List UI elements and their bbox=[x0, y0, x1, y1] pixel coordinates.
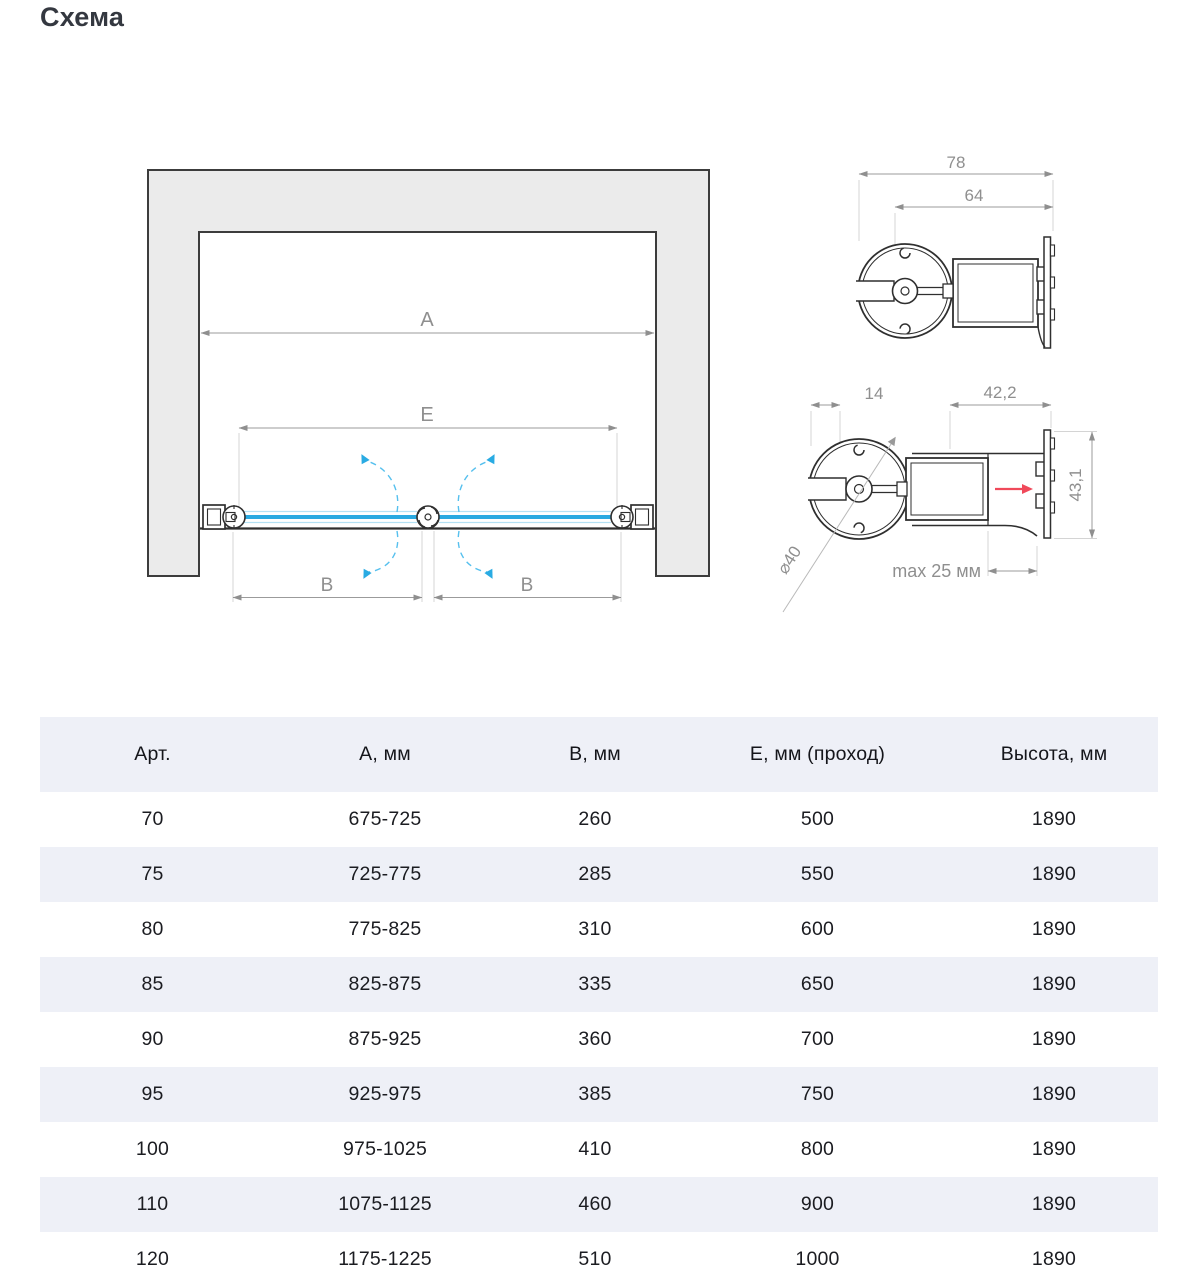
table-cell: 875-925 bbox=[265, 1012, 505, 1067]
table-cell: 1890 bbox=[950, 957, 1158, 1012]
table-cell: 95 bbox=[40, 1067, 265, 1122]
dim-78-label: 78 bbox=[947, 153, 966, 172]
column-header: В, мм bbox=[505, 717, 685, 792]
table-cell: 310 bbox=[505, 902, 685, 957]
detail-section-bottom: 14 42,2 bbox=[773, 383, 1097, 612]
table-cell: 1890 bbox=[950, 1067, 1158, 1122]
table-cell: 385 bbox=[505, 1067, 685, 1122]
table-cell: 650 bbox=[685, 957, 950, 1012]
table-row: 70675-7252605001890 bbox=[40, 792, 1158, 847]
table-row: 85825-8753356501890 bbox=[40, 957, 1158, 1012]
table-cell: 600 bbox=[685, 902, 950, 957]
dim-b-right-label: B bbox=[521, 575, 534, 596]
column-header: Арт. bbox=[40, 717, 265, 792]
dim-14-label: 14 bbox=[865, 384, 884, 403]
size-table: Арт.А, ммВ, ммЕ, мм (проход)Высота, мм 7… bbox=[40, 717, 1158, 1287]
table-cell: 825-875 bbox=[265, 957, 505, 1012]
table-cell: 260 bbox=[505, 792, 685, 847]
table-cell: 1890 bbox=[950, 902, 1158, 957]
table-cell: 925-975 bbox=[265, 1067, 505, 1122]
column-header: Высота, мм bbox=[950, 717, 1158, 792]
table-cell: 1890 bbox=[950, 1012, 1158, 1067]
table-cell: 460 bbox=[505, 1177, 685, 1232]
table-cell: 75 bbox=[40, 847, 265, 902]
table-cell: 285 bbox=[505, 847, 685, 902]
table-row: 1101075-11254609001890 bbox=[40, 1177, 1158, 1232]
table-row: 90875-9253607001890 bbox=[40, 1012, 1158, 1067]
hinge-right bbox=[611, 505, 633, 529]
table-cell: 1000 bbox=[685, 1232, 950, 1287]
table-row: 1201175-122551010001890 bbox=[40, 1232, 1158, 1287]
table-cell: 1175-1225 bbox=[265, 1232, 505, 1287]
table-cell: 410 bbox=[505, 1122, 685, 1177]
table-cell: 750 bbox=[685, 1067, 950, 1122]
table-cell: 1075-1125 bbox=[265, 1177, 505, 1232]
table-cell: 700 bbox=[685, 1012, 950, 1067]
table-cell: 120 bbox=[40, 1232, 265, 1287]
adjust-arrow-icon bbox=[995, 484, 1033, 494]
table-cell: 975-1025 bbox=[265, 1122, 505, 1177]
plan-view: A E bbox=[148, 170, 709, 602]
column-header: Е, мм (проход) bbox=[685, 717, 950, 792]
table-cell: 70 bbox=[40, 792, 265, 847]
hinge-center bbox=[417, 506, 439, 528]
table-cell: 775-825 bbox=[265, 902, 505, 957]
table-cell: 800 bbox=[685, 1122, 950, 1177]
table-cell: 1890 bbox=[950, 847, 1158, 902]
dim-a-label: A bbox=[420, 309, 434, 331]
dim-43-1-label: 43,1 bbox=[1066, 468, 1085, 501]
table-cell: 90 bbox=[40, 1012, 265, 1067]
table-row: 80775-8253106001890 bbox=[40, 902, 1158, 957]
table-cell: 1890 bbox=[950, 1177, 1158, 1232]
scheme-diagram: A E bbox=[0, 0, 1198, 705]
column-header: А, мм bbox=[265, 717, 505, 792]
dim-max-adjust-label: max 25 мм bbox=[892, 561, 981, 581]
table-head-row: Арт.А, ммВ, ммЕ, мм (проход)Высота, мм bbox=[40, 717, 1158, 792]
table-cell: 510 bbox=[505, 1232, 685, 1287]
table-cell: 1890 bbox=[950, 792, 1158, 847]
table-row: 100975-10254108001890 bbox=[40, 1122, 1158, 1177]
dim-e-label: E bbox=[420, 404, 433, 426]
table-cell: 1890 bbox=[950, 1232, 1158, 1287]
table-cell: 110 bbox=[40, 1177, 265, 1232]
dim-b: B B bbox=[233, 531, 621, 602]
hinge-left bbox=[223, 505, 245, 529]
dim-b-left-label: B bbox=[321, 575, 334, 596]
table-cell: 500 bbox=[685, 792, 950, 847]
dim-64-label: 64 bbox=[965, 186, 984, 205]
table-cell: 900 bbox=[685, 1177, 950, 1232]
dim-diameter-label: ⌀40 bbox=[773, 543, 805, 578]
table-body: 70675-725260500189075725-775285550189080… bbox=[40, 792, 1158, 1287]
table-cell: 85 bbox=[40, 957, 265, 1012]
table-cell: 360 bbox=[505, 1012, 685, 1067]
table-row: 75725-7752855501890 bbox=[40, 847, 1158, 902]
table-cell: 335 bbox=[505, 957, 685, 1012]
table-row: 95925-9753857501890 bbox=[40, 1067, 1158, 1122]
table-cell: 1890 bbox=[950, 1122, 1158, 1177]
dim-42-2-label: 42,2 bbox=[983, 383, 1016, 402]
table-cell: 100 bbox=[40, 1122, 265, 1177]
table-cell: 725-775 bbox=[265, 847, 505, 902]
detail-section-top: 78 64 bbox=[856, 153, 1055, 348]
table-cell: 675-725 bbox=[265, 792, 505, 847]
table-cell: 80 bbox=[40, 902, 265, 957]
table-cell: 550 bbox=[685, 847, 950, 902]
